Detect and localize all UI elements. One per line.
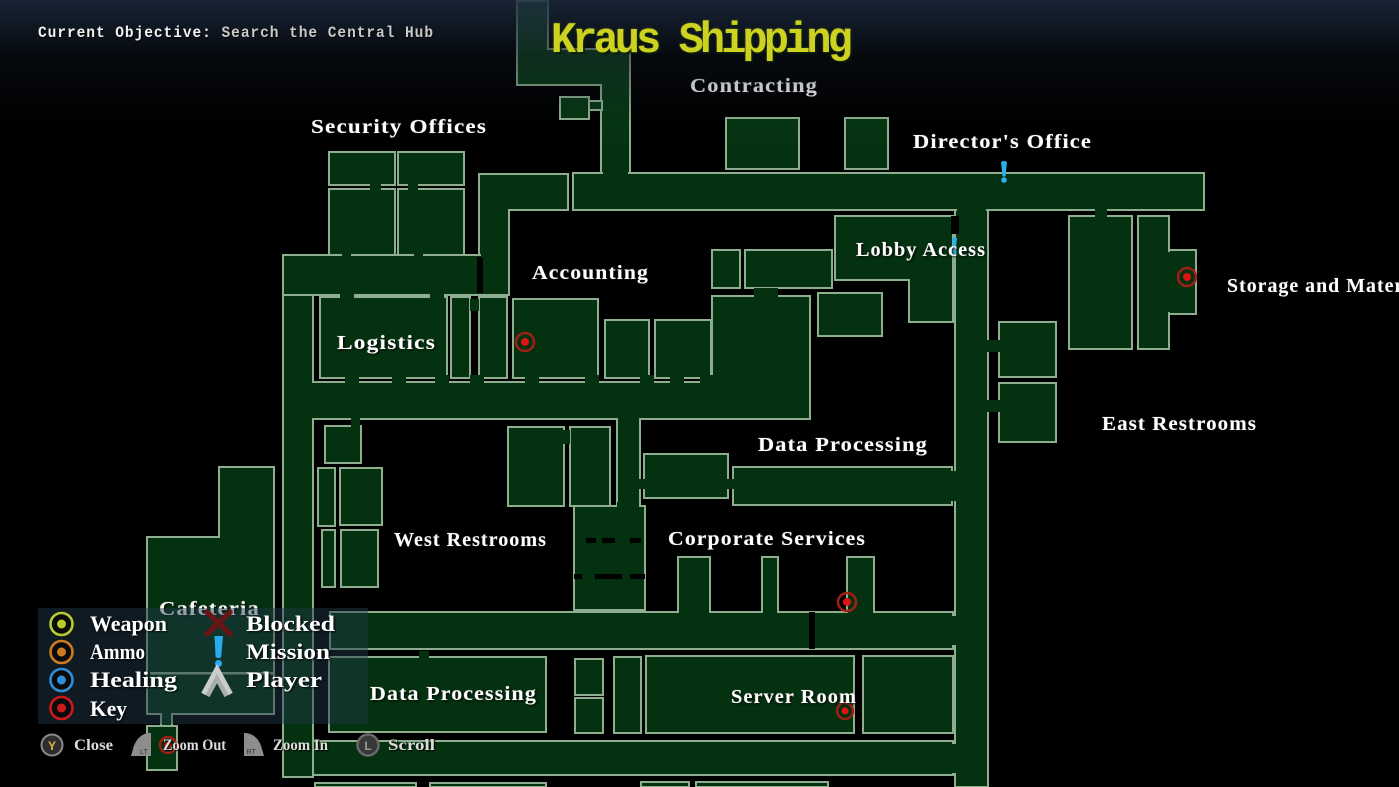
- svg-text:L: L: [364, 739, 371, 753]
- svg-text:LT: LT: [140, 749, 148, 756]
- svg-text:RT: RT: [246, 749, 256, 756]
- svg-text:Y: Y: [48, 739, 56, 753]
